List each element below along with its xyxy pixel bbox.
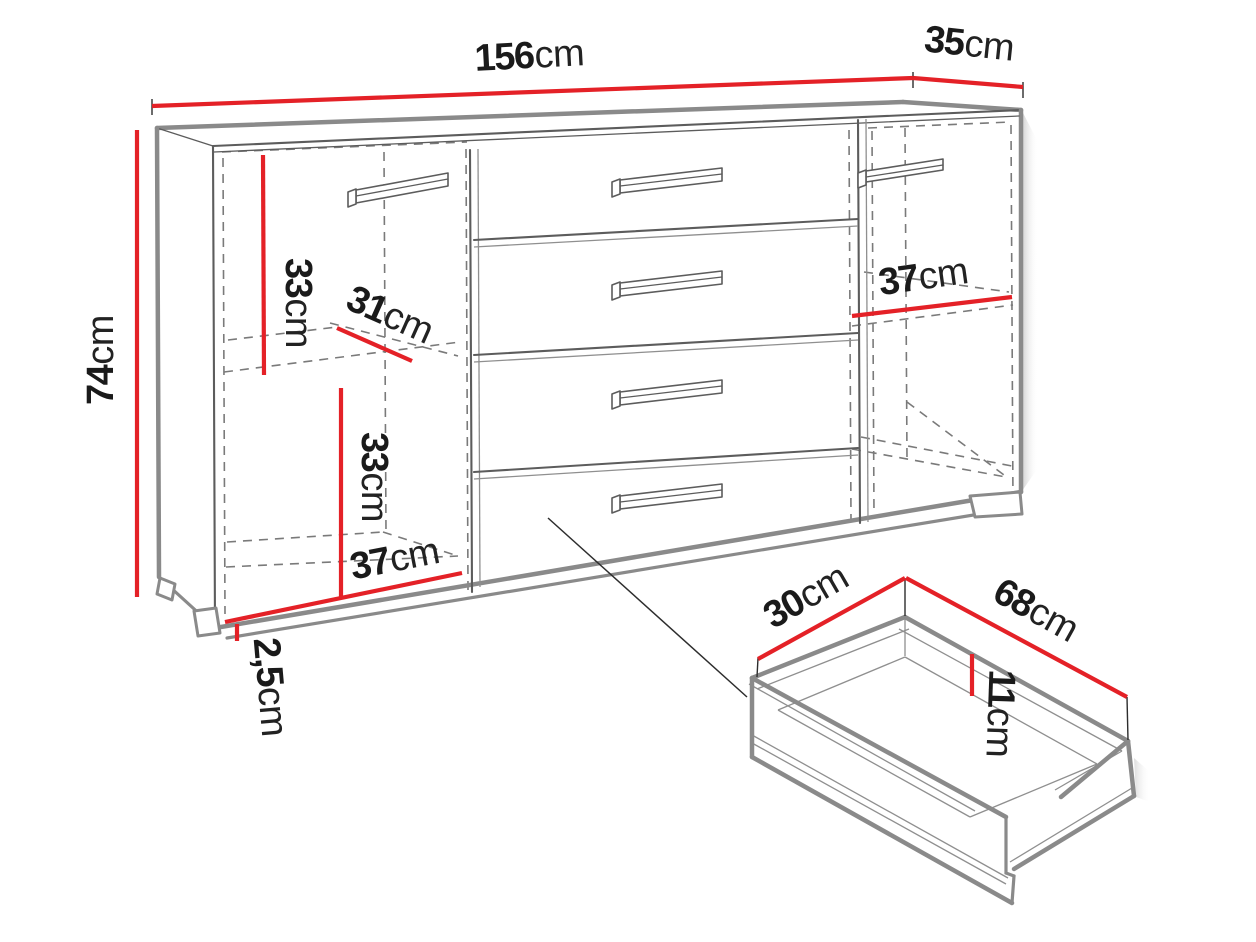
right-door-handle-cap bbox=[858, 170, 866, 188]
cabinet-left-outer-edge bbox=[157, 128, 159, 577]
drawer-handle-3-cap bbox=[612, 391, 620, 409]
drawer-right-side-shade bbox=[1134, 758, 1150, 802]
cabinet-depth-dimension-line bbox=[913, 78, 1023, 87]
drawer-width-tick-right bbox=[1127, 697, 1128, 740]
label-cabinet-width: 156cm bbox=[474, 32, 586, 80]
cabinet-foot-front-left bbox=[194, 608, 220, 636]
drawer-front-panel-lip-edge bbox=[1012, 876, 1014, 903]
label-drawer-inner-height: 11cm bbox=[977, 669, 1022, 758]
drawer-depth-tick-left bbox=[757, 658, 758, 677]
cabinet bbox=[137, 72, 1038, 641]
label-cabinet-depth: 35cm bbox=[922, 18, 1016, 69]
cabinet-right-side-shade bbox=[1022, 111, 1038, 491]
left-door-handle-cap bbox=[348, 189, 356, 207]
cabinet-body-face bbox=[157, 102, 1021, 628]
label-drawer-depth: 30cm bbox=[757, 556, 856, 637]
cabinet-foot-front-right bbox=[970, 492, 1022, 517]
diagram-stage: 156cm 35cm 74cm 33cm 31cm 33cm 37cm 2,5c… bbox=[0, 0, 1256, 942]
drawer-handle-4-cap bbox=[612, 495, 620, 513]
label-cabinet-height: 74cm bbox=[80, 315, 122, 405]
drawer-body-face bbox=[752, 617, 1134, 903]
label-left-upper-compartment-height: 33cm bbox=[277, 258, 319, 348]
drawer-handle-1-cap bbox=[612, 179, 620, 197]
drawer-handle-2-cap bbox=[612, 282, 620, 300]
left-upper-height-dimension-line bbox=[263, 155, 264, 375]
furniture-dimension-diagram: 156cm 35cm 74cm 33cm 31cm 33cm 37cm 2,5c… bbox=[0, 0, 1256, 942]
label-left-lower-compartment-height: 33cm bbox=[353, 432, 395, 522]
cabinet-width-dimension-line bbox=[152, 78, 913, 106]
label-drawer-width: 68cm bbox=[986, 570, 1085, 650]
drawer-detail bbox=[749, 578, 1150, 903]
label-plinth-height: 2,5cm bbox=[245, 636, 295, 738]
